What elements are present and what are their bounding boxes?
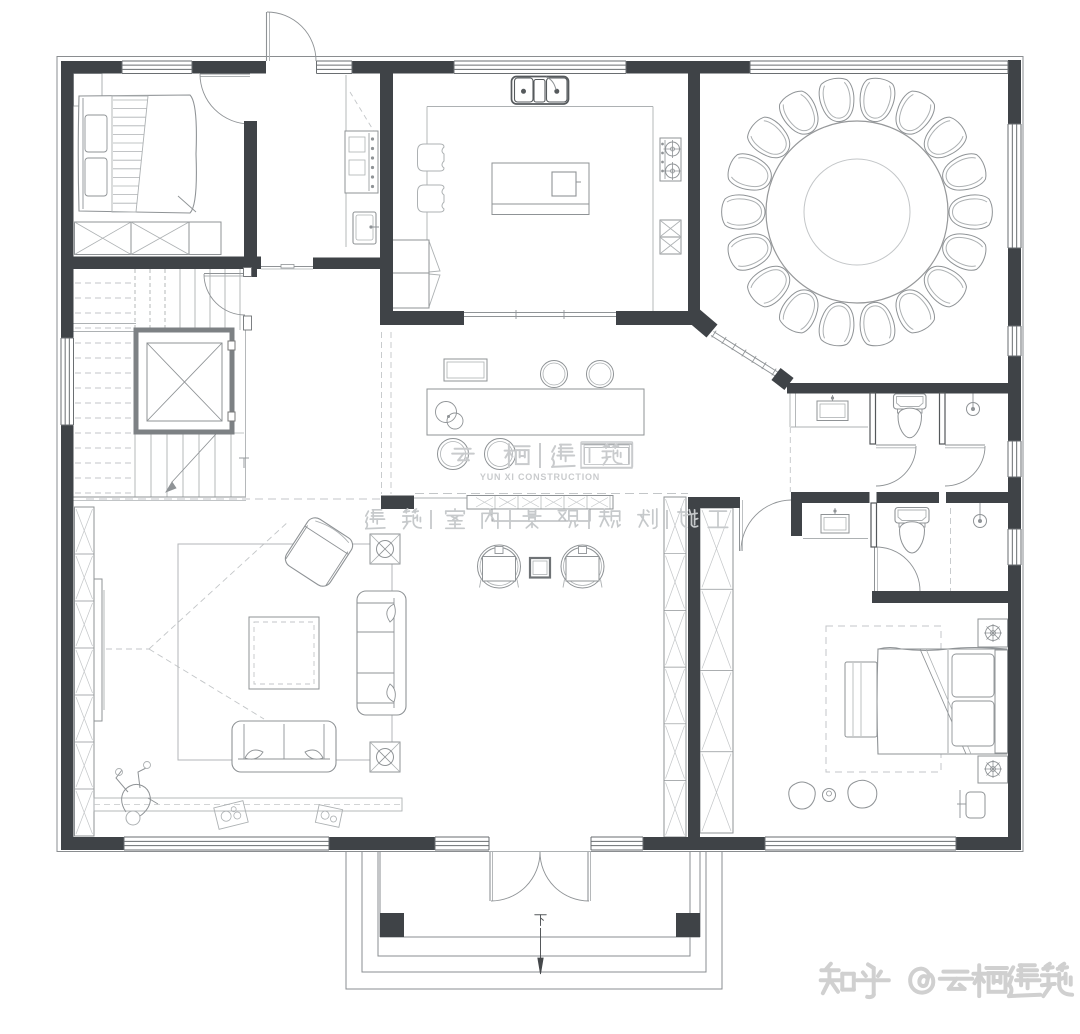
svg-text:YUN XI CONSTRUCTION: YUN XI CONSTRUCTION (480, 472, 600, 482)
